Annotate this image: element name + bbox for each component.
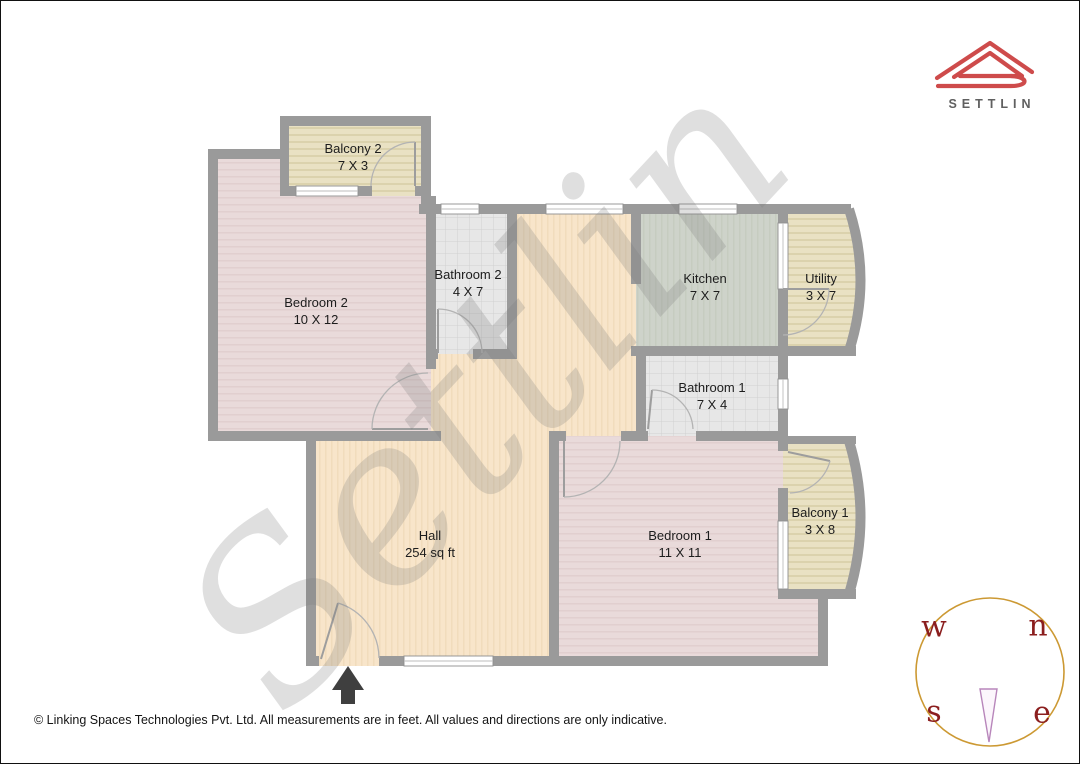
room-label-kitchen: Kitchen 7 X 7 — [683, 270, 726, 304]
room-dims: 10 X 12 — [284, 311, 348, 328]
room-dims: 3 X 7 — [805, 287, 837, 304]
room-name: Bedroom 1 — [648, 527, 712, 544]
room-name: Bedroom 2 — [284, 294, 348, 311]
room-label-hall: Hall 254 sq ft — [405, 527, 455, 561]
room-dims: 11 X 11 — [648, 544, 712, 561]
room-name: Balcony 2 — [324, 140, 381, 157]
room-dims: 254 sq ft — [405, 544, 455, 561]
room-dims: 4 X 7 — [434, 283, 501, 300]
floor-plan-drawing — [1, 1, 1080, 764]
room-name: Hall — [405, 527, 455, 544]
room-dims: 7 X 7 — [683, 287, 726, 304]
compass-letter-n: n — [1028, 609, 1047, 644]
room-label-utility: Utility 3 X 7 — [805, 270, 837, 304]
compass-letter-s: s — [926, 695, 941, 730]
compass-needle-icon — [980, 689, 997, 742]
room-dims: 7 X 3 — [324, 157, 381, 174]
brand-name: SETTLIN — [948, 97, 1035, 111]
room-name: Bathroom 1 — [678, 379, 745, 396]
copyright-text: © Linking Spaces Technologies Pvt. Ltd. … — [34, 713, 667, 727]
room-label-bathroom-1: Bathroom 1 7 X 4 — [678, 379, 745, 413]
room-label-bedroom-1: Bedroom 1 11 X 11 — [648, 527, 712, 561]
room-label-balcony-2: Balcony 2 7 X 3 — [324, 140, 381, 174]
room-name: Balcony 1 — [791, 504, 848, 521]
room-name: Kitchen — [683, 270, 726, 287]
settlin-roof-icon — [937, 43, 1032, 86]
room-label-balcony-1: Balcony 1 3 X 8 — [791, 504, 848, 538]
room-name: Bathroom 2 — [434, 266, 501, 283]
room-dims: 3 X 8 — [791, 521, 848, 538]
compass-letter-w: w — [921, 610, 947, 645]
compass-letter-e: e — [1033, 696, 1051, 731]
room-name: Utility — [805, 270, 837, 287]
room-dims: 7 X 4 — [678, 396, 745, 413]
floorplan-page: Settlin Balcony 2 7 X 3 Bedroom 2 10 X 1… — [0, 0, 1080, 764]
room-label-bathroom-2: Bathroom 2 4 X 7 — [434, 266, 501, 300]
entrance-arrow-icon — [332, 666, 364, 704]
room-label-bedroom-2: Bedroom 2 10 X 12 — [284, 294, 348, 328]
